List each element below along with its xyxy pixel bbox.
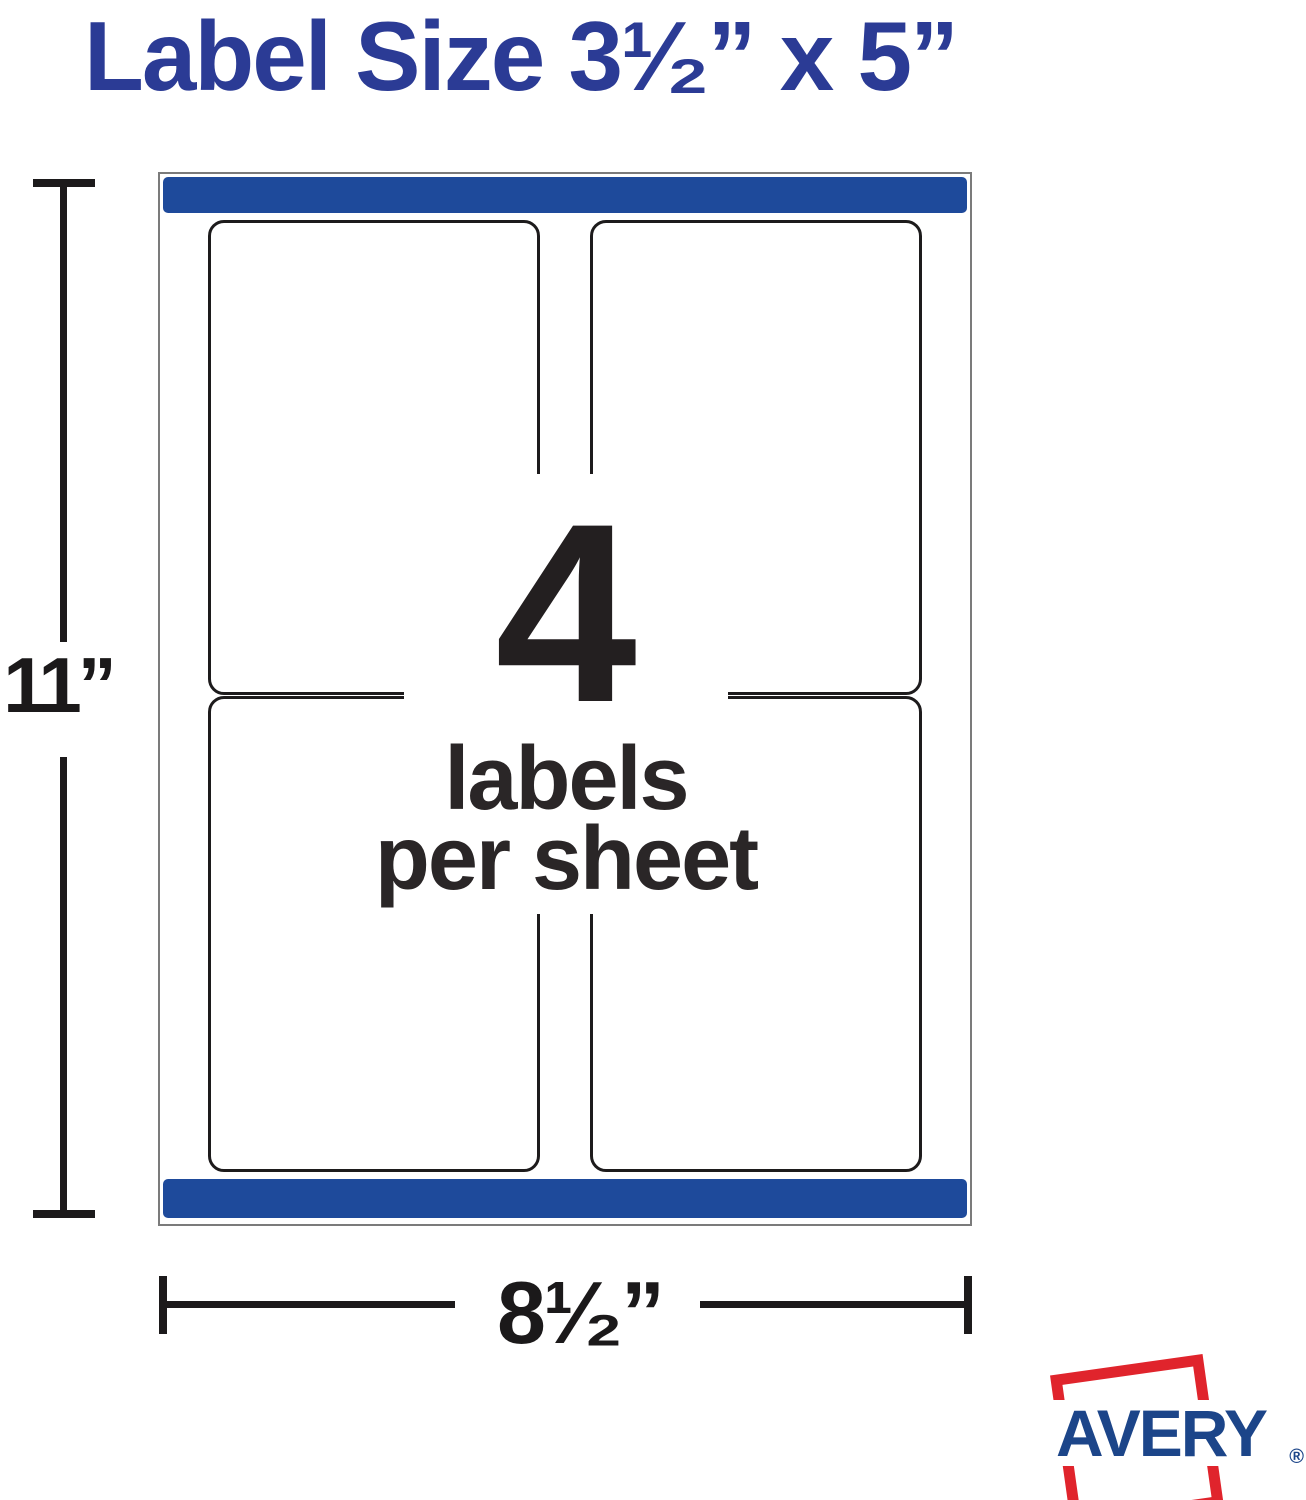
- width-dimension-line-left: [159, 1301, 455, 1308]
- labels-per-sheet-callout: 4 labels per sheet: [404, 474, 728, 914]
- sheet-height-value: 11”: [0, 645, 116, 725]
- sheet-width-value: 8¹⁄₂”: [460, 1268, 700, 1358]
- labels-caption-line2: per sheet: [375, 819, 757, 899]
- height-dimension-line-upper: [60, 179, 67, 642]
- sheet-bottom-margin-strip: [163, 1179, 967, 1218]
- labels-caption-line1: labels: [444, 739, 687, 819]
- avery-brand-name: AVERY: [1018, 1398, 1304, 1468]
- product-diagram-page: Label Size 3¹⁄₂” x 5” 4 labels per sheet…: [0, 0, 1306, 1500]
- width-dimension-line-right: [700, 1301, 972, 1308]
- width-dimension-right-cap: [964, 1276, 972, 1334]
- avery-logo: AVERY ®: [1018, 1358, 1304, 1500]
- label-sheet-diagram: 4 labels per sheet: [158, 172, 972, 1226]
- sheet-top-margin-strip: [163, 177, 967, 213]
- registered-trademark-icon: ®: [1289, 1446, 1304, 1469]
- labels-count: 4: [495, 514, 637, 714]
- page-title: Label Size 3¹⁄₂” x 5”: [84, 0, 957, 112]
- height-dimension-line-lower: [60, 757, 67, 1214]
- height-dimension-bottom-cap: [33, 1210, 95, 1218]
